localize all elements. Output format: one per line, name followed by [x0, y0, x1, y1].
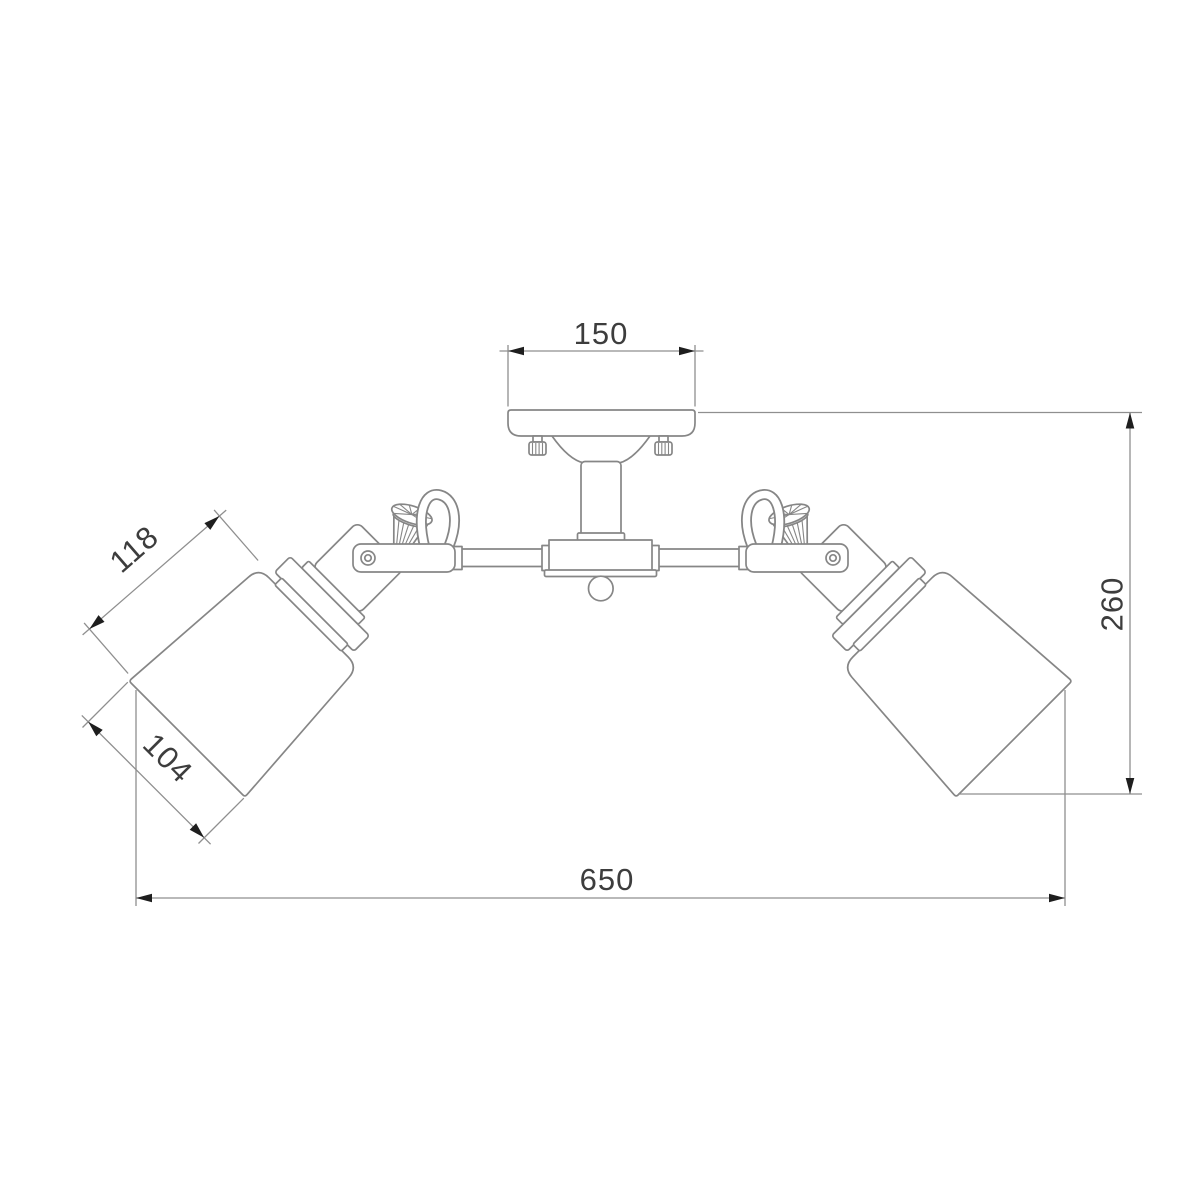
technical-drawing-canvas: 150 260 650 118 104 [0, 0, 1200, 1200]
left-canopy-screw [529, 436, 546, 455]
center-stem [581, 462, 621, 537]
dimension-label-150: 150 [574, 316, 629, 351]
dimension-label-260: 260 [1095, 577, 1130, 632]
left-arm-tube [456, 549, 545, 567]
hub-ball-finial [589, 576, 614, 601]
center-hub [549, 540, 652, 571]
right-arm-tube [656, 549, 745, 567]
right-canopy-screw [655, 436, 672, 455]
right-shade-assembly [762, 487, 1071, 796]
canopy-flare [552, 436, 650, 463]
dimension-label-650: 650 [580, 862, 635, 897]
left-wire-loop [421, 495, 454, 548]
right-pivot-screw-center [830, 555, 836, 561]
ceiling-canopy [508, 410, 695, 436]
left-pivot-screw-center [365, 555, 371, 561]
dimension-canopy-width: 150 [500, 316, 704, 407]
right-wire-loop [746, 495, 779, 548]
lamp-technical-drawing: 150 260 650 118 104 [0, 0, 1200, 1200]
